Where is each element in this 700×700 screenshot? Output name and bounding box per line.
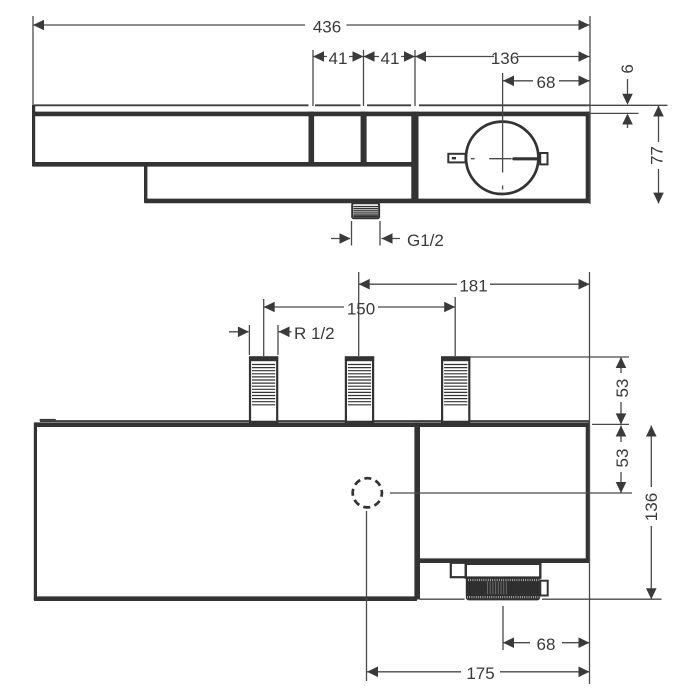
svg-text:136: 136 <box>642 493 661 521</box>
svg-text:68: 68 <box>537 635 556 654</box>
svg-text:77: 77 <box>648 146 667 165</box>
svg-text:41: 41 <box>329 49 348 68</box>
svg-text:68: 68 <box>537 73 556 92</box>
svg-text:175: 175 <box>466 664 494 683</box>
svg-text:R 1/2: R 1/2 <box>294 324 335 343</box>
svg-text:150: 150 <box>347 299 375 318</box>
svg-text:G1/2: G1/2 <box>407 231 444 250</box>
svg-text:41: 41 <box>381 49 400 68</box>
svg-text:53: 53 <box>613 379 632 398</box>
svg-text:181: 181 <box>459 277 487 296</box>
svg-text:6: 6 <box>618 64 637 73</box>
svg-text:436: 436 <box>313 17 341 36</box>
svg-text:136: 136 <box>491 49 519 68</box>
svg-text:53: 53 <box>613 449 632 468</box>
